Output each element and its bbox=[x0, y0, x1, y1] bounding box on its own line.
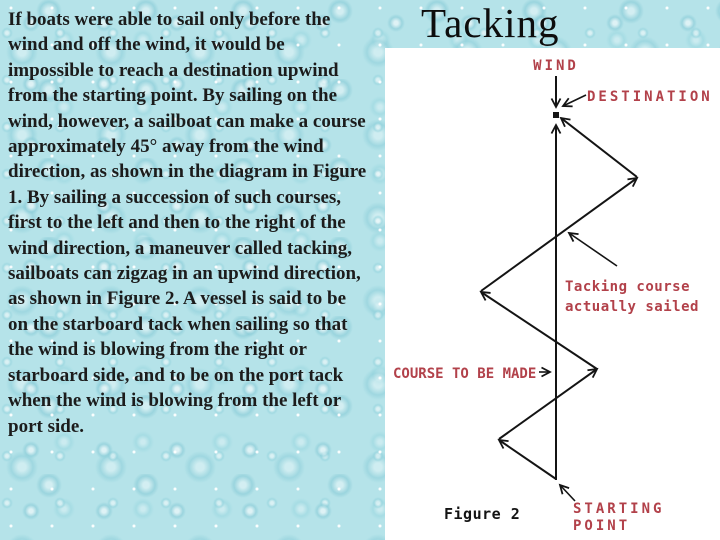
slide: If boats were able to sail only before t… bbox=[0, 0, 720, 540]
starting-point-label-line2: POINT bbox=[573, 518, 630, 534]
tack-leg-1 bbox=[499, 440, 556, 479]
destination-label: DESTINATION bbox=[587, 89, 713, 105]
body-paragraph: If boats were able to sail only before t… bbox=[8, 7, 370, 439]
course-to-be-made-label: COURSE TO BE MADE bbox=[393, 366, 536, 382]
destination-dot bbox=[553, 112, 559, 118]
wind-label: WIND bbox=[533, 58, 579, 74]
tacking-course-label-line1: Tacking course bbox=[565, 279, 690, 295]
tack-leg-4 bbox=[481, 178, 637, 291]
starting-point-callout-arrow bbox=[560, 485, 575, 501]
destination-callout-arrow bbox=[563, 95, 586, 106]
figure-caption: Figure 2 bbox=[444, 505, 520, 523]
tacking-course-callout-arrow bbox=[569, 233, 617, 266]
diagram-panel: WIND DESTINATION Tacking course actually… bbox=[385, 48, 720, 540]
tack-leg-5 bbox=[561, 118, 637, 177]
tacking-diagram: WIND DESTINATION Tacking course actually… bbox=[385, 48, 720, 540]
starting-point-label-line1: STARTING bbox=[573, 501, 664, 517]
tacking-course-label-line2: actually sailed bbox=[565, 299, 699, 315]
slide-title: Tacking bbox=[421, 0, 559, 46]
